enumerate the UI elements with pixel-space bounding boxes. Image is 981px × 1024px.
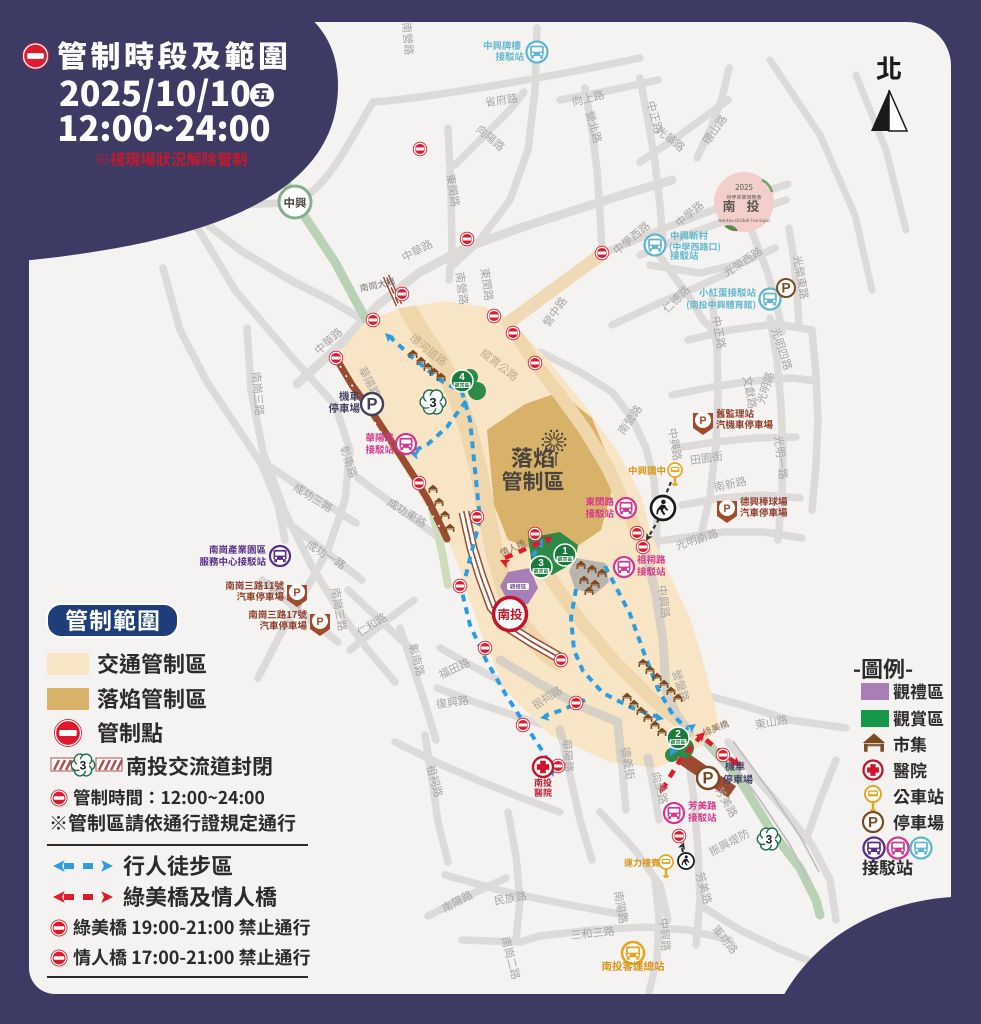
svg-text:P: P — [868, 814, 878, 831]
svg-text:3: 3 — [80, 759, 87, 773]
svg-text:P: P — [699, 415, 706, 427]
svg-text:2: 2 — [675, 729, 681, 740]
svg-text:P: P — [723, 503, 730, 515]
svg-text:3: 3 — [766, 833, 773, 847]
svg-text:P: P — [781, 281, 790, 296]
svg-text:P: P — [316, 616, 323, 628]
svg-text:P: P — [293, 587, 300, 599]
svg-text:P: P — [702, 770, 713, 788]
svg-text:4: 4 — [459, 372, 465, 383]
svg-text:1: 1 — [562, 546, 568, 557]
svg-text:3: 3 — [429, 395, 436, 410]
svg-text:3: 3 — [538, 558, 544, 569]
svg-text:P: P — [366, 396, 377, 414]
